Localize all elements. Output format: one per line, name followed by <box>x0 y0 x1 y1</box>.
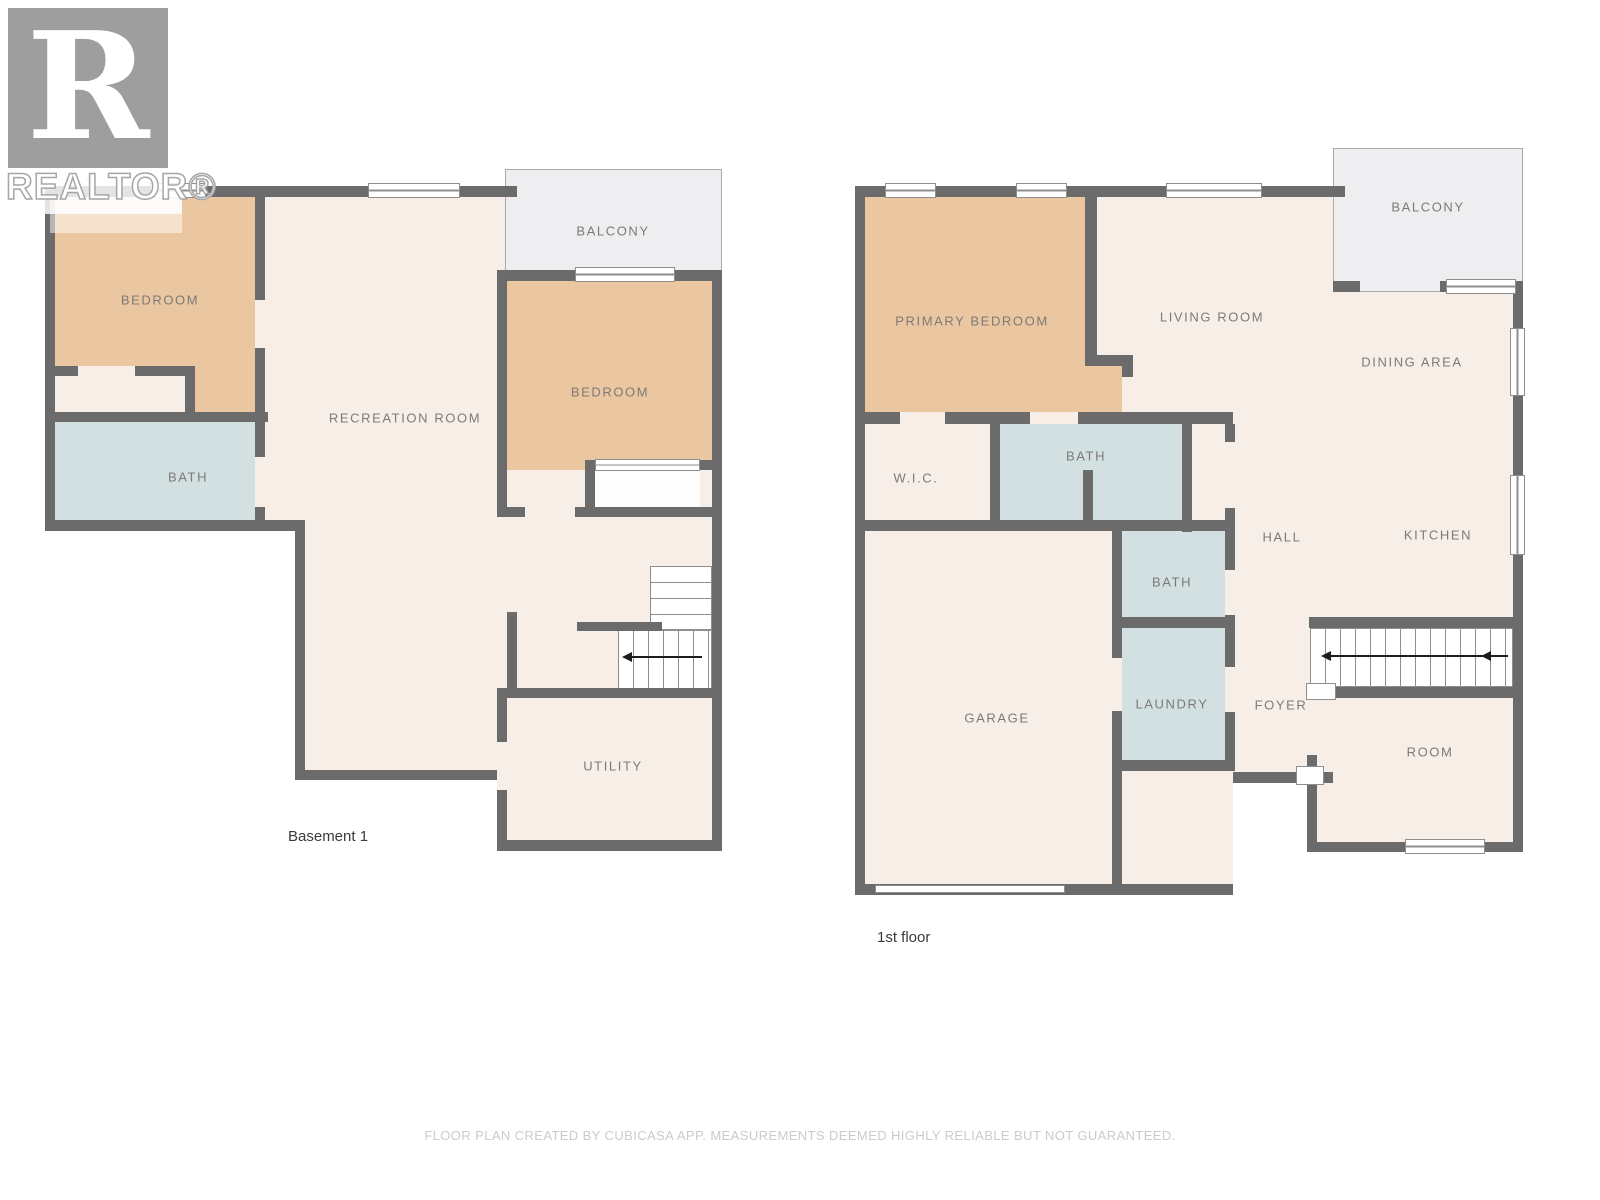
closet-doors <box>595 459 700 471</box>
door-opening <box>525 507 575 517</box>
wall-segment <box>45 186 55 531</box>
stairs-direction-arrow-icon <box>1321 651 1331 661</box>
room-label-foyer: FOYER <box>1255 698 1308 713</box>
floor-area <box>865 783 1233 884</box>
wall-segment <box>1225 424 1235 442</box>
wall-segment <box>1333 281 1360 292</box>
window <box>1405 839 1485 854</box>
room-label-recreation-room: RECREATION ROOM <box>329 411 481 426</box>
wall-segment <box>855 186 865 895</box>
closet-fill <box>595 470 700 507</box>
room-label-kitchen: KITCHEN <box>1404 528 1472 543</box>
wall-segment <box>507 688 722 698</box>
bath-fill <box>55 422 255 520</box>
stairs-direction-arrow-icon <box>1481 651 1491 661</box>
room-label-bath-lower: BATH <box>1152 575 1192 590</box>
room-label-garage: GARAGE <box>964 711 1029 726</box>
door-opening <box>1030 412 1078 424</box>
staircase-lower-flight <box>618 630 712 690</box>
window <box>885 183 936 198</box>
wall-segment <box>1085 355 1133 366</box>
wall-segment <box>1182 424 1192 532</box>
door-opening <box>497 742 507 790</box>
room-label-primary-bedroom: PRIMARY BEDROOM <box>895 314 1049 329</box>
wall-segment <box>295 770 507 780</box>
primary-bedroom-fill <box>1085 366 1122 412</box>
wall-segment <box>855 520 1233 531</box>
stairs-direction-arrow-icon <box>622 652 632 662</box>
window <box>1446 279 1516 294</box>
wall-segment <box>1122 366 1133 377</box>
wall-segment <box>990 424 1000 520</box>
room-label-room: ROOM <box>1407 745 1454 760</box>
wall-segment <box>1122 617 1235 628</box>
room-label-hall: HALL <box>1263 530 1302 545</box>
wall-segment <box>295 520 305 780</box>
room-label-living-room: LIVING ROOM <box>1160 310 1264 325</box>
door-opening <box>1122 377 1133 412</box>
staircase-upper-flight <box>650 566 712 630</box>
wall-segment <box>700 460 712 470</box>
door-opening <box>900 412 945 424</box>
realtor-wordmark: REALTOR® <box>6 166 217 208</box>
wall-segment <box>497 840 722 851</box>
window <box>368 183 460 198</box>
realtor-logo-r-icon: R <box>8 4 168 164</box>
room-label-wic: W.I.C. <box>894 471 939 486</box>
wall-segment <box>1333 687 1523 698</box>
room-label-bath: BATH <box>168 470 208 485</box>
wall-segment <box>1085 186 1097 360</box>
window <box>1510 328 1525 396</box>
wall-segment <box>507 612 517 692</box>
stairs-direction-line <box>632 656 702 658</box>
plan-caption-basement: Basement 1 <box>288 828 368 845</box>
disclaimer-text: FLOOR PLAN CREATED BY CUBICASA APP. MEAS… <box>0 1128 1600 1143</box>
bedroom-1-fill <box>195 366 255 412</box>
room-label-utility: UTILITY <box>583 759 643 774</box>
plan-caption-first-floor: 1st floor <box>877 929 930 946</box>
garage-door <box>875 885 1065 893</box>
room-label-bath-upper: BATH <box>1066 449 1106 464</box>
window <box>1510 475 1525 555</box>
wall-segment <box>1112 760 1235 771</box>
room-label-dining-area: DINING AREA <box>1361 355 1462 370</box>
floor-area <box>305 197 507 770</box>
door-opening <box>255 300 265 348</box>
entry-door <box>1296 766 1324 785</box>
door-opening <box>1225 570 1235 615</box>
wall-segment <box>45 520 305 531</box>
window <box>1166 183 1262 198</box>
wall-segment <box>1309 617 1523 628</box>
room-label-bedroom-2: BEDROOM <box>571 385 649 400</box>
wall-segment <box>1083 470 1093 520</box>
balcony-area <box>1333 148 1523 292</box>
room-label-bedroom-1: BEDROOM <box>121 293 199 308</box>
room-label-balcony: BALCONY <box>1391 200 1464 215</box>
door-opening <box>1225 667 1235 712</box>
wall-segment <box>45 412 268 422</box>
door-opening <box>255 457 265 507</box>
bedroom-2-fill <box>507 281 712 470</box>
door-opening <box>1112 658 1122 711</box>
room-label-laundry: LAUNDRY <box>1135 697 1208 712</box>
laundry-fill <box>1122 628 1225 760</box>
room-label-balcony: BALCONY <box>576 224 649 239</box>
floor-plan-canvas: BEDROOM BALCONY BEDROOM RECREATION ROOM … <box>0 0 1600 1200</box>
wall-segment <box>1225 508 1235 771</box>
window <box>575 267 675 282</box>
window <box>1016 183 1067 198</box>
wall-segment <box>577 622 662 631</box>
stair-landing-door <box>1306 683 1336 700</box>
primary-bedroom-fill <box>865 197 1085 412</box>
realtor-logo: R <box>8 8 168 168</box>
wall-segment <box>585 460 595 517</box>
wall-segment <box>497 270 507 517</box>
door-opening <box>78 366 135 376</box>
wall-segment <box>712 279 722 851</box>
